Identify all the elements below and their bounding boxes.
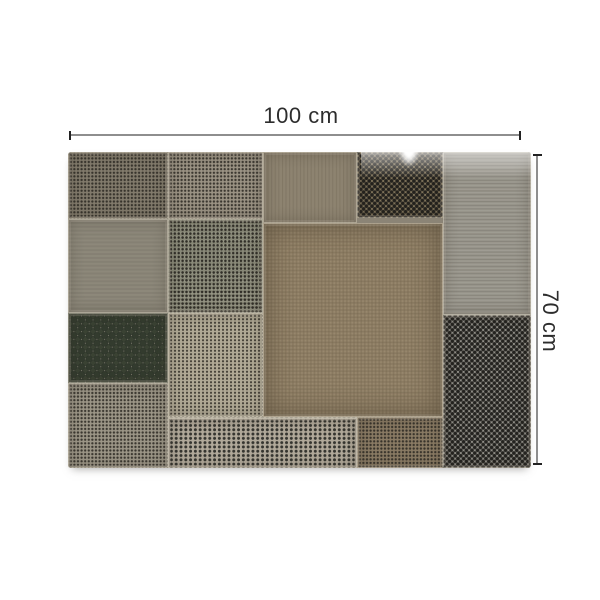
width-dimension-line xyxy=(70,134,520,136)
metal-panel-beige xyxy=(168,313,263,417)
metal-panel-right-lower xyxy=(443,315,531,468)
width-dimension-label: 100 cm xyxy=(70,103,520,129)
product-dimension-diagram: 100 cm 70 cm xyxy=(0,0,600,600)
metal-panel-mid-left xyxy=(68,219,168,313)
width-dimension-left-tick xyxy=(69,131,71,140)
metal-panel-mid-center-left xyxy=(168,219,263,313)
metal-panel-top-left xyxy=(68,152,168,219)
metal-panel-big-holes xyxy=(68,313,168,383)
photo-flare-artifact xyxy=(398,152,420,167)
metal-panel-top-brown xyxy=(263,152,357,223)
width-dimension-right-tick xyxy=(519,131,521,140)
metal-panel-center-large xyxy=(263,223,443,417)
metal-panel-bottom-silver xyxy=(168,417,357,468)
height-dimension-top-tick xyxy=(533,154,542,156)
metal-panel-bottom-left xyxy=(68,383,168,468)
product-image xyxy=(68,152,531,468)
height-dimension-bottom-tick xyxy=(533,463,542,465)
metal-panel-bottom-brown xyxy=(357,417,443,468)
photo-highlight-wash xyxy=(361,152,531,178)
metal-panel-top-light-gray xyxy=(168,152,263,219)
height-dimension-label: 70 cm xyxy=(537,290,563,352)
